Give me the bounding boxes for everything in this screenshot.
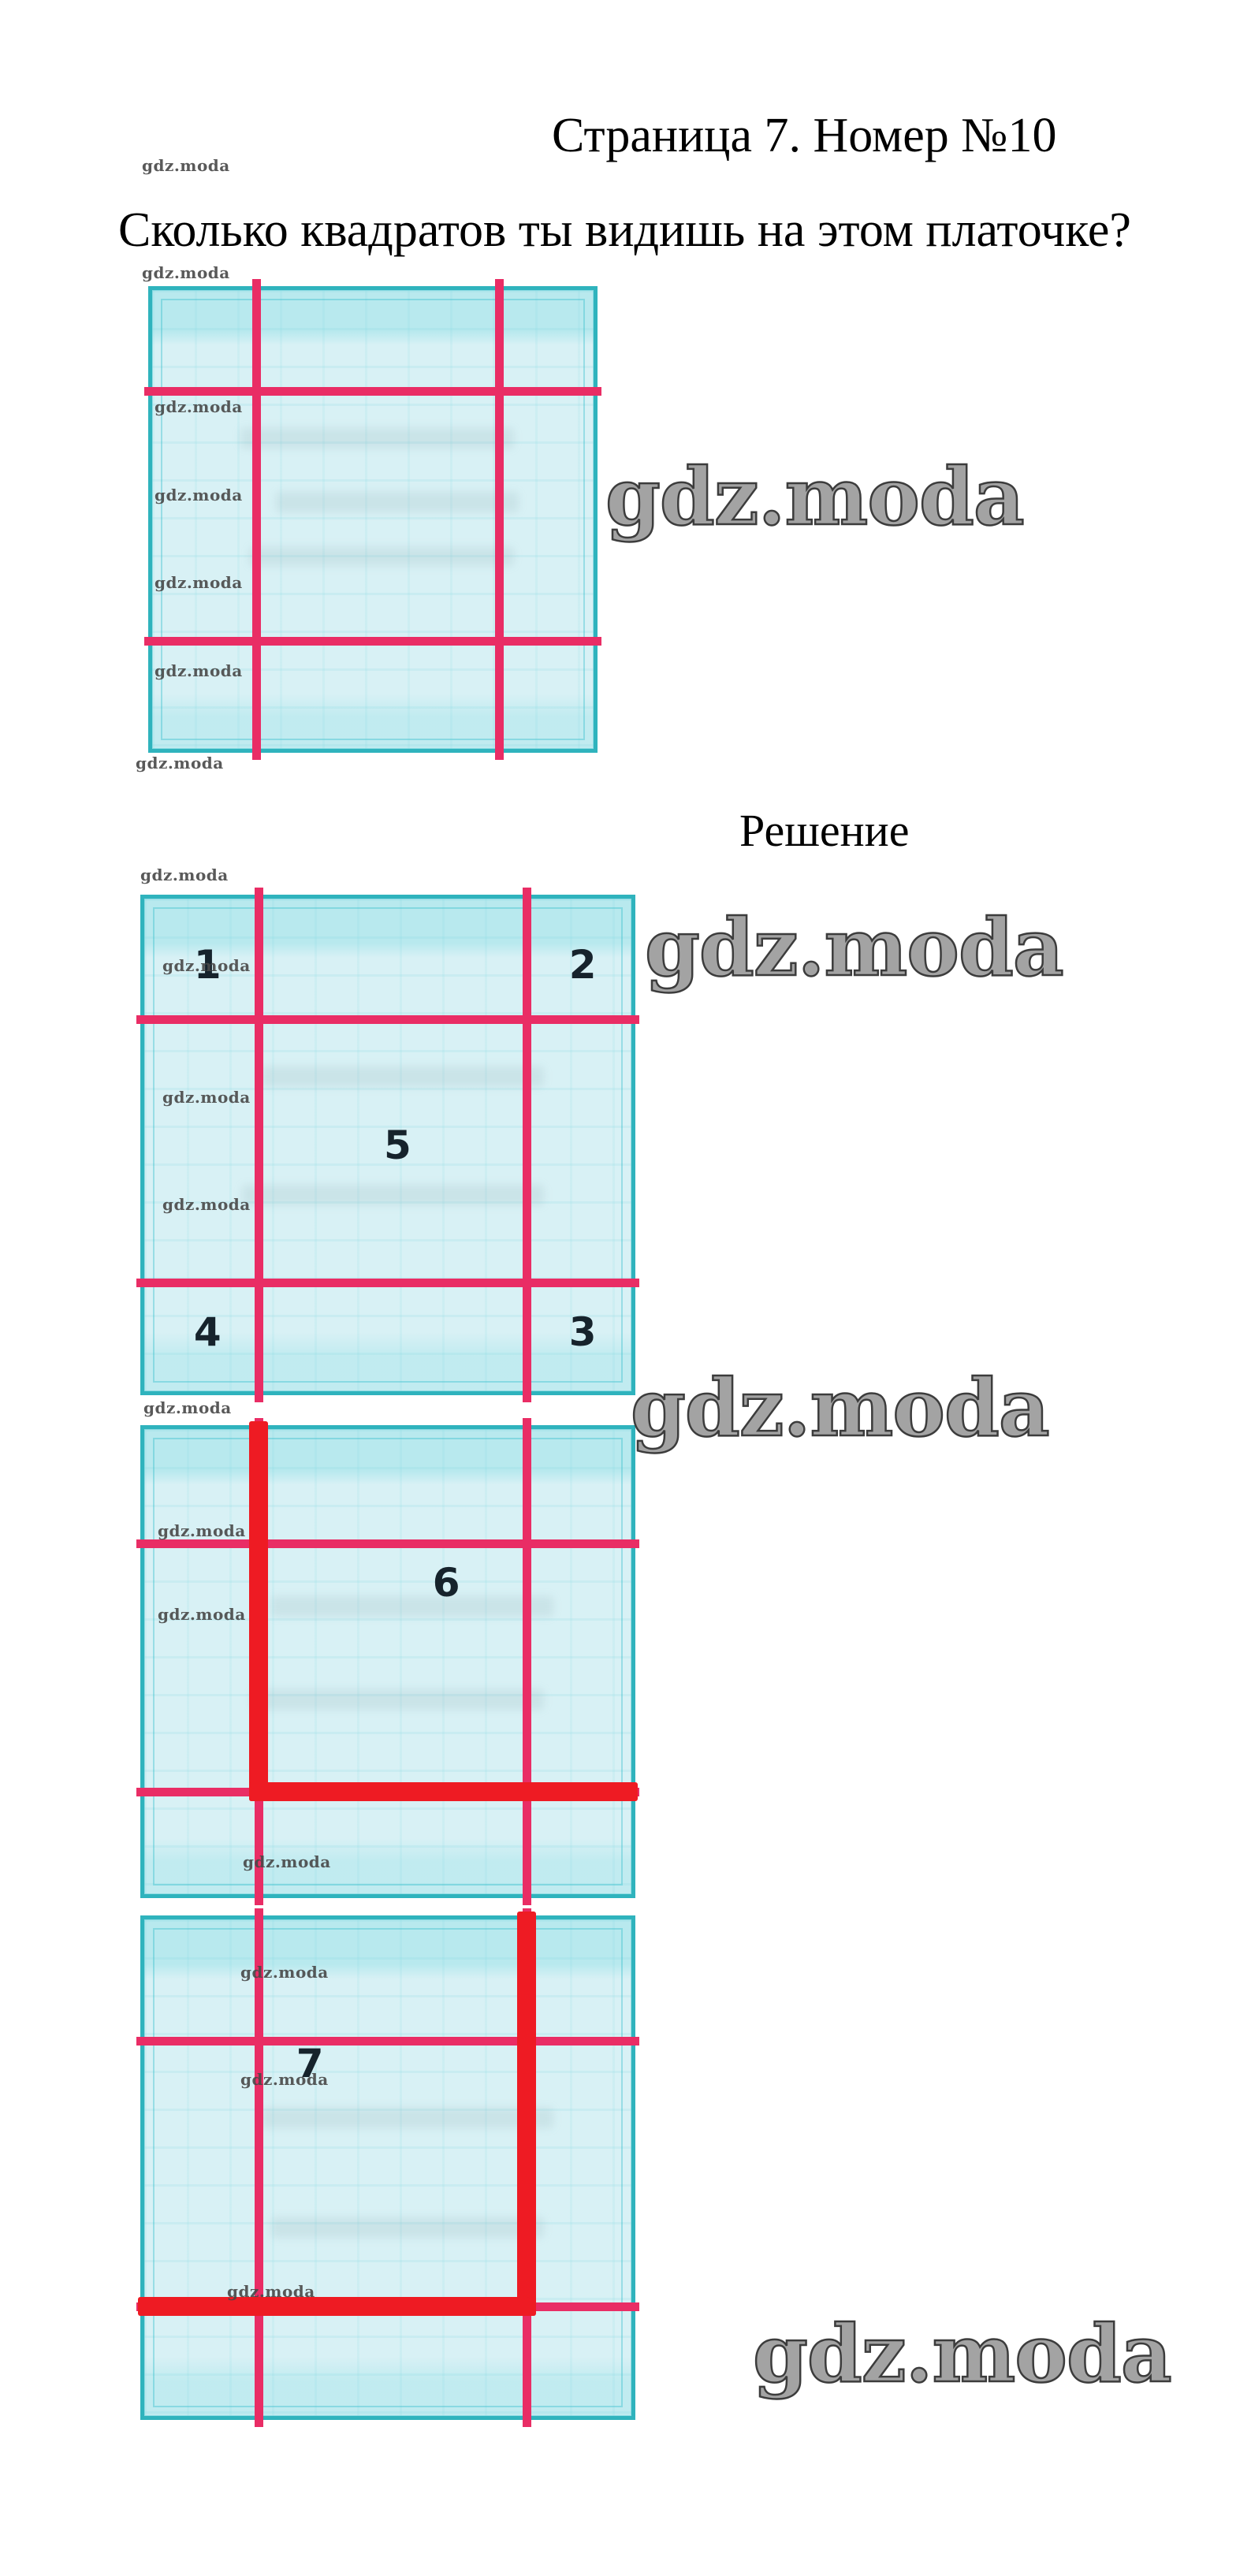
watermark-small: gdz.moda [162, 958, 251, 973]
handkerchief-solution-7: 7 [140, 1915, 635, 2420]
bleedthrough-ghost [240, 428, 514, 449]
watermark-small: gdz.moda [140, 867, 229, 883]
bleedthrough-ghost [271, 2217, 544, 2238]
watermark-large: gdz.moda [753, 2314, 1171, 2393]
square-number-label: 6 [433, 1563, 460, 1603]
grid-line-vertical-1 [255, 1908, 263, 2427]
grid-line-vertical-2 [495, 279, 504, 760]
watermark-small: gdz.moda [155, 487, 243, 503]
watermark-small: gdz.moda [162, 1089, 251, 1105]
grid-line-vertical-2 [523, 1418, 531, 1905]
watermark-small: gdz.moda [240, 1964, 329, 1980]
watermark-small: gdz.moda [143, 1400, 232, 1416]
highlight-line-vertical [517, 1912, 536, 2316]
square-number-label: 4 [194, 1312, 222, 1352]
watermark-small: gdz.moda [155, 399, 243, 415]
solution-heading: Решение [739, 806, 909, 856]
bleedthrough-ghost [242, 1185, 544, 1205]
bleedthrough-ghost [249, 547, 514, 566]
bleedthrough-ghost [261, 1067, 543, 1087]
cloth-pinstripe [153, 1928, 623, 2407]
square-number-label: 5 [384, 1126, 411, 1165]
grid-line-horizontal-2 [144, 637, 601, 646]
bleedthrough-ghost [271, 1596, 553, 1617]
watermark-small: gdz.moda [142, 265, 230, 281]
grid-line-horizontal-1 [136, 1015, 639, 1024]
bleedthrough-ghost [251, 1689, 544, 1710]
watermark-small: gdz.moda [243, 1854, 331, 1870]
grid-line-vertical-1 [252, 279, 261, 760]
watermark-small: gdz.moda [158, 1523, 246, 1539]
watermark-small: gdz.moda [155, 663, 243, 679]
square-number-label: 2 [569, 945, 597, 985]
watermark-large: gdz.moda [645, 908, 1063, 987]
solution-page: gdz.moda Страница 7. Номер №10 Сколько к… [0, 0, 1251, 2576]
grid-line-horizontal-1 [136, 1539, 639, 1548]
highlight-line-horizontal [138, 2297, 530, 2316]
cloth-pinstripe [153, 1438, 623, 1885]
grid-line-horizontal-2 [136, 1279, 639, 1287]
watermark-small: gdz.moda [162, 1197, 251, 1212]
handkerchief-solution-6: 6 [140, 1425, 635, 1898]
question-text: Сколько квадратов ты видишь на этом плат… [118, 203, 1131, 257]
grid-line-horizontal-1 [136, 2037, 639, 2046]
cloth-texture [144, 1919, 631, 2416]
highlight-line-vertical [249, 1421, 268, 1801]
watermark-small: gdz.moda [240, 2072, 329, 2087]
watermark-large: gdz.moda [605, 457, 1024, 536]
grid-line-vertical-1 [255, 888, 263, 1402]
grid-line-vertical-2 [523, 888, 531, 1402]
page-title: Страница 7. Номер №10 [552, 109, 1056, 162]
handkerchief-problem [148, 286, 598, 753]
cloth-texture [144, 1429, 631, 1894]
square-number-label: 3 [569, 1312, 597, 1352]
highlight-line-horizontal [249, 1782, 638, 1801]
watermark-small: gdz.moda [227, 2284, 315, 2299]
grid-line-horizontal-1 [144, 387, 601, 396]
watermark-large: gdz.moda [631, 1368, 1049, 1447]
watermark-small: gdz.moda [158, 1606, 246, 1622]
watermark-small: gdz.moda [142, 158, 230, 173]
bleedthrough-ghost [261, 2108, 553, 2128]
bleedthrough-ghost [276, 492, 519, 512]
watermark-small: gdz.moda [136, 755, 224, 771]
watermark-small: gdz.moda [155, 575, 243, 590]
